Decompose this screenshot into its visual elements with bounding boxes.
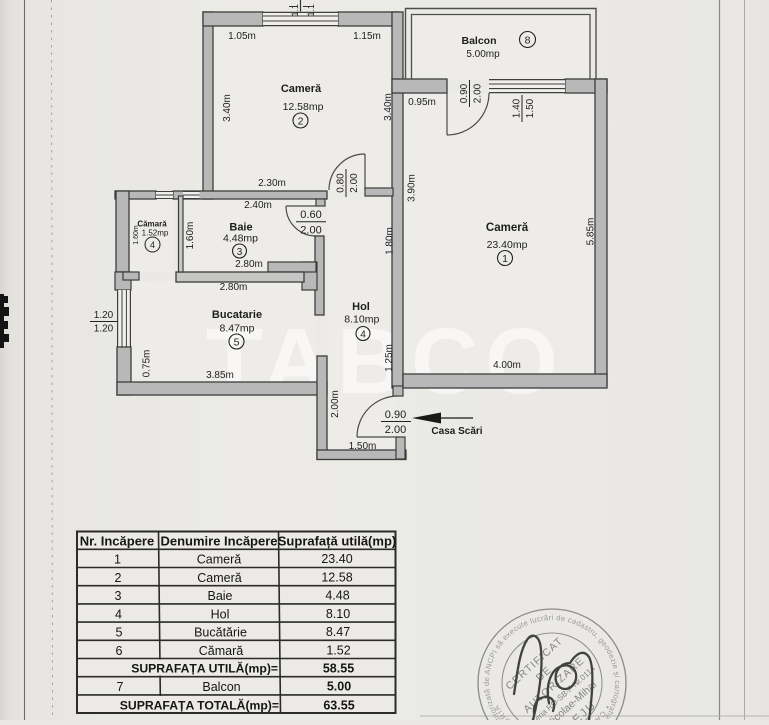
svg-text:1.1: 1.1 <box>306 4 316 17</box>
svg-text:1.60m: 1.60m <box>185 222 196 250</box>
svg-text:1.25m: 1.25m <box>384 344 395 372</box>
svg-text:4.48mp: 4.48mp <box>223 233 258 245</box>
svg-text:1: 1 <box>502 253 508 265</box>
svg-text:8.10mp: 8.10mp <box>344 314 379 326</box>
svg-text:Cămară: Cămară <box>137 220 167 229</box>
svg-text:4: 4 <box>360 330 366 341</box>
svg-text:0.90: 0.90 <box>385 409 406 421</box>
svg-text:2.80m: 2.80m <box>220 282 248 293</box>
svg-text:2.00: 2.00 <box>300 225 321 237</box>
svg-text:1.80m: 1.80m <box>385 227 396 255</box>
svg-text:Hol: Hol <box>352 301 370 313</box>
svg-text:Cameră: Cameră <box>197 571 242 585</box>
svg-text:23.40: 23.40 <box>321 552 352 566</box>
svg-text:0.80: 0.80 <box>336 173 347 193</box>
svg-text:5.00: 5.00 <box>327 680 351 694</box>
svg-text:2.00m: 2.00m <box>330 390 341 418</box>
svg-text:2: 2 <box>115 571 122 585</box>
svg-text:2: 2 <box>298 116 304 128</box>
svg-text:1.52: 1.52 <box>326 644 350 658</box>
svg-text:0.60: 0.60 <box>300 209 321 221</box>
svg-text:1.50: 1.50 <box>525 98 536 118</box>
svg-text:2.00: 2.00 <box>385 424 406 436</box>
svg-text:5: 5 <box>234 337 240 349</box>
svg-text:7: 7 <box>117 680 124 694</box>
svg-text:2.40m: 2.40m <box>244 200 272 211</box>
svg-text:1.40: 1.40 <box>512 98 523 118</box>
svg-text:4: 4 <box>150 240 155 250</box>
svg-text:1.20: 1.20 <box>94 324 114 335</box>
svg-text:3.85m: 3.85m <box>206 370 234 381</box>
svg-text:Bucătărie: Bucătărie <box>194 626 247 640</box>
svg-text:Balcon: Balcon <box>202 680 240 694</box>
svg-text:1: 1 <box>114 553 121 567</box>
svg-text:12.58: 12.58 <box>321 571 352 585</box>
svg-text:6: 6 <box>116 644 123 658</box>
svg-text:2.80m: 2.80m <box>235 259 263 270</box>
svg-text:4: 4 <box>115 608 122 622</box>
svg-text:3.40m: 3.40m <box>222 94 233 122</box>
svg-text:SUPRAFAȚA TOTALĂ(mp)=: SUPRAFAȚA TOTALĂ(mp)= <box>120 698 279 713</box>
svg-text:1.60m: 1.60m <box>133 225 140 245</box>
svg-text:Balcon: Balcon <box>461 35 496 47</box>
svg-text:1.05m: 1.05m <box>228 31 256 42</box>
svg-text:0.90: 0.90 <box>459 83 470 103</box>
svg-text:1.52mp: 1.52mp <box>142 229 169 238</box>
svg-text:2.00: 2.00 <box>349 173 360 193</box>
svg-text:63.55: 63.55 <box>323 699 354 713</box>
svg-text:SUPRAFAȚA UTILĂ(mp)=: SUPRAFAȚA UTILĂ(mp)= <box>131 661 278 676</box>
svg-text:1.50m: 1.50m <box>349 441 377 452</box>
svg-text:3: 3 <box>115 589 122 603</box>
svg-text:58.55: 58.55 <box>323 662 354 676</box>
svg-text:12.58mp: 12.58mp <box>283 101 324 113</box>
svg-text:Cameră: Cameră <box>197 553 242 567</box>
svg-text:3.90m: 3.90m <box>407 174 418 202</box>
svg-text:8.47mp: 8.47mp <box>219 323 254 335</box>
svg-text:1.20: 1.20 <box>94 310 114 321</box>
svg-text:Cameră: Cameră <box>281 83 322 95</box>
svg-text:0.95m: 0.95m <box>408 97 436 108</box>
svg-text:Cameră: Cameră <box>486 222 529 234</box>
svg-text:4.48: 4.48 <box>325 589 349 603</box>
svg-text:2.30m: 2.30m <box>258 178 286 189</box>
svg-text:5.00mp: 5.00mp <box>466 49 500 60</box>
svg-text:5: 5 <box>116 626 123 640</box>
svg-text:Bucatarie: Bucatarie <box>212 309 262 321</box>
svg-text:Baie: Baie <box>207 589 232 603</box>
svg-text:5.85m: 5.85m <box>586 218 597 246</box>
svg-text:Hol: Hol <box>211 608 230 622</box>
svg-text:Suprafață utilă(mp): Suprafață utilă(mp) <box>278 534 396 549</box>
svg-text:Nr. Incăpere: Nr. Incăpere <box>80 534 154 549</box>
svg-text:Denumire Incăpere: Denumire Incăpere <box>160 534 277 549</box>
svg-text:4.00m: 4.00m <box>493 360 521 371</box>
svg-text:1.1: 1.1 <box>290 4 300 17</box>
svg-text:8.47: 8.47 <box>326 625 350 639</box>
svg-text:1.15m: 1.15m <box>353 31 381 42</box>
svg-text:Casa Scări: Casa Scări <box>431 426 482 437</box>
svg-text:3.40m: 3.40m <box>383 93 394 121</box>
svg-text:23.40mp: 23.40mp <box>487 239 528 251</box>
svg-text:Cămară: Cămară <box>199 644 244 658</box>
svg-text:3: 3 <box>237 247 243 258</box>
svg-text:0.75m: 0.75m <box>142 350 153 378</box>
svg-text:8: 8 <box>525 35 531 47</box>
svg-text:2.00: 2.00 <box>473 83 484 103</box>
svg-text:8.10: 8.10 <box>326 607 350 621</box>
